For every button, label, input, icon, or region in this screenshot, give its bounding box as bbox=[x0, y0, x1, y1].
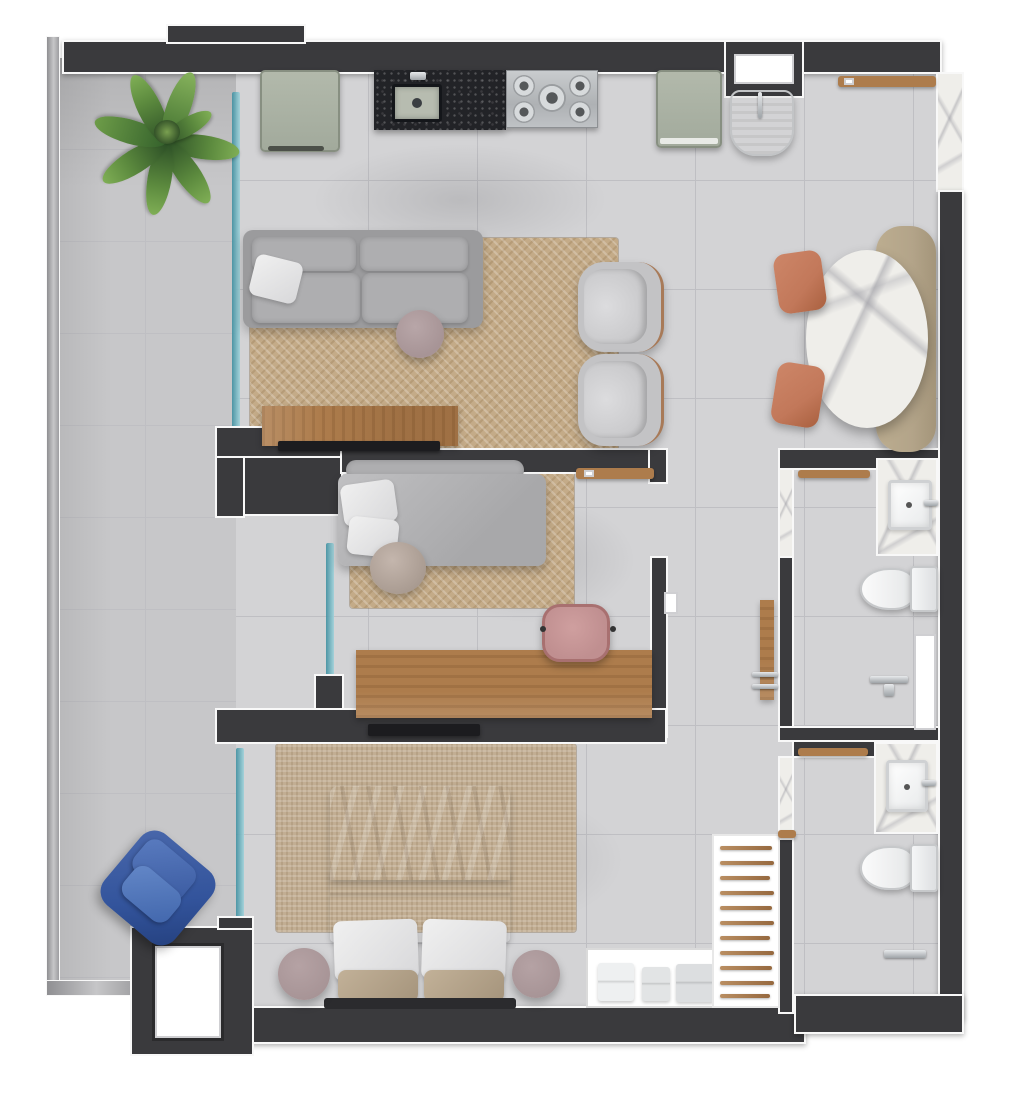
wall-tv bbox=[368, 724, 480, 736]
rack-rung bbox=[720, 906, 772, 910]
gas-cooktop bbox=[506, 70, 598, 128]
door-handle bbox=[752, 672, 778, 677]
sink-drain bbox=[904, 784, 910, 790]
right-marble-pillar bbox=[936, 72, 964, 192]
barrel-armchair bbox=[578, 262, 664, 352]
armchair-cushion bbox=[584, 361, 647, 438]
balcony-parapet-bottom bbox=[46, 980, 138, 996]
bed-blanket bbox=[330, 786, 510, 880]
washing-machine bbox=[656, 70, 722, 148]
top-wall bbox=[62, 40, 942, 74]
rack-rung bbox=[720, 936, 770, 940]
laundry-faucet bbox=[758, 92, 762, 118]
service-window bbox=[734, 54, 794, 84]
terracotta-dining-chair bbox=[769, 361, 826, 430]
rack-rung bbox=[720, 846, 772, 850]
towel-rail bbox=[798, 748, 868, 756]
rack-bracket bbox=[778, 830, 796, 838]
sink-faucet bbox=[922, 780, 936, 786]
entry-door bbox=[155, 946, 221, 1038]
desk bbox=[356, 650, 652, 718]
oval-marble-dining-table bbox=[806, 250, 928, 428]
shelf-bracket bbox=[844, 78, 854, 85]
round-nightstand bbox=[278, 948, 330, 1000]
door-stop-bracket bbox=[664, 592, 678, 614]
tv-console bbox=[262, 406, 458, 446]
middle-room-wall-block bbox=[243, 456, 343, 516]
tv bbox=[278, 441, 440, 451]
toilet-tank bbox=[910, 566, 938, 612]
folded-clothes-shelf bbox=[586, 948, 718, 1008]
entry-wall-step bbox=[217, 916, 254, 930]
bathroom-bottom-door-jamb bbox=[778, 756, 794, 840]
toilet-tank bbox=[910, 844, 938, 892]
rack-rung bbox=[720, 994, 770, 998]
door-handle bbox=[752, 684, 778, 689]
round-side-table bbox=[396, 310, 444, 358]
burner bbox=[513, 75, 535, 97]
balcony-glass-wall bbox=[232, 92, 240, 430]
top-wall-step bbox=[166, 24, 306, 44]
kitchen-faucet bbox=[410, 72, 426, 80]
rack-rung bbox=[720, 876, 770, 880]
bathroom-top-door-jamb bbox=[778, 468, 794, 558]
master-bedroom-glass-wall bbox=[236, 748, 244, 930]
shelf-bracket bbox=[584, 470, 594, 477]
round-nightstand bbox=[512, 950, 560, 998]
office-chair-arm bbox=[540, 626, 546, 632]
sink-drain bbox=[906, 502, 912, 508]
folded-clothes bbox=[676, 964, 714, 1002]
shower-glass-door bbox=[914, 634, 936, 730]
rack-rung bbox=[720, 981, 774, 985]
rack-rung bbox=[720, 966, 772, 970]
potted-palm-plant bbox=[116, 90, 220, 194]
laundry-tub bbox=[730, 90, 794, 156]
washer-panel bbox=[660, 138, 718, 144]
center-burner bbox=[538, 84, 566, 112]
headboard bbox=[324, 998, 516, 1009]
burner bbox=[569, 101, 591, 123]
plant-center bbox=[154, 120, 180, 144]
terracotta-dining-chair bbox=[772, 249, 828, 315]
barrel-armchair bbox=[578, 354, 664, 446]
round-pouf bbox=[370, 542, 426, 594]
sofa-back-cushion bbox=[360, 237, 468, 271]
bottom-wall bbox=[250, 1006, 806, 1044]
balcony-parapet-left bbox=[46, 36, 60, 986]
shower-fixture bbox=[884, 950, 926, 958]
burner bbox=[569, 75, 591, 97]
bathroom-bottom-left-wall bbox=[778, 838, 794, 1014]
rack-rung bbox=[720, 861, 774, 865]
office-chair-arm bbox=[610, 626, 616, 632]
middle-room-wall-block bbox=[215, 456, 245, 518]
shower-fixture bbox=[870, 676, 908, 683]
bottom-wall-right bbox=[794, 994, 964, 1034]
folded-clothes bbox=[642, 967, 670, 1001]
bathroom-top-left-wall bbox=[778, 556, 794, 738]
towel-rail bbox=[798, 470, 870, 478]
folded-clothes bbox=[598, 963, 634, 1001]
floor-plan-canvas bbox=[0, 0, 1024, 1095]
office-chair bbox=[542, 604, 610, 662]
rack-rung bbox=[720, 951, 774, 955]
right-wall bbox=[938, 190, 964, 1020]
sink-faucet bbox=[924, 500, 938, 506]
ladder-clothes-rack bbox=[712, 834, 780, 1008]
burner bbox=[513, 101, 535, 123]
shower-head bbox=[884, 684, 894, 696]
rack-rung bbox=[720, 891, 774, 895]
rack-rung bbox=[720, 921, 774, 925]
middle-room-glass-wall bbox=[326, 543, 334, 681]
refrigerator bbox=[260, 70, 340, 152]
refrigerator-handle bbox=[268, 146, 324, 151]
armchair-cushion bbox=[584, 269, 647, 344]
kitchen-sink-drain bbox=[412, 98, 422, 108]
